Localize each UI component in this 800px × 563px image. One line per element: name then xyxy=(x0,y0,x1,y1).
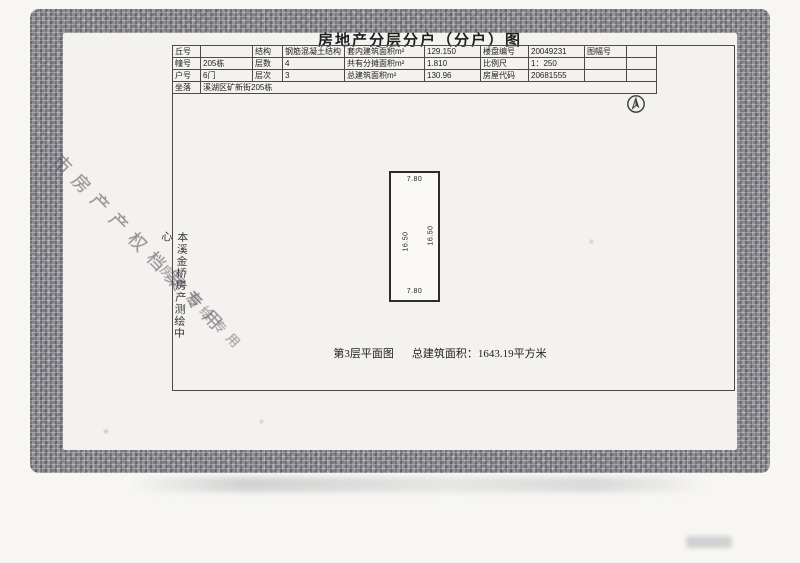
cell-value: 1.810 xyxy=(425,58,481,70)
cell-empty xyxy=(585,58,627,70)
plan-dim-bottom: 7.80 xyxy=(389,288,440,295)
cell-label: 层数 xyxy=(253,58,283,70)
cell-value xyxy=(201,46,253,58)
cell-empty xyxy=(627,58,657,70)
caption-plan-name: 第3层平面图 xyxy=(333,348,394,360)
cell-label: 户号 xyxy=(173,70,201,82)
drawing-area-border xyxy=(172,45,735,391)
toner-speck xyxy=(104,430,108,433)
property-info-table: 丘号 结构 钢筋混凝土结构 套内建筑面积m² 129.150 楼盘编号 2004… xyxy=(172,45,657,94)
table-row: 丘号 结构 钢筋混凝土结构 套内建筑面积m² 129.150 楼盘编号 2004… xyxy=(173,46,657,58)
table-row: 幢号 205栋 层数 4 共有分摊面积m² 1.810 比例尺 1：250 xyxy=(173,58,657,70)
table-row: 坐落 溪湖区矿新街205栋 xyxy=(173,82,657,94)
cell-label: 幢号 xyxy=(173,58,201,70)
survey-center-vertical-mark: 本溪金桥房产测绘中心 xyxy=(154,230,190,347)
scanned-document: 市房产产权档案专用 房产测绘专用 房地产分层分户（分户）图 丘号 结构 钢筋混凝… xyxy=(0,0,800,563)
cell-label: 坐落 xyxy=(173,82,201,94)
cell-label: 房屋代码 xyxy=(481,70,529,82)
cell-value: 6门 xyxy=(201,70,253,82)
cell-address: 溪湖区矿新街205栋 xyxy=(201,82,657,94)
table-row: 户号 6门 层次 3 总建筑面积m² 130.96 房屋代码 20681555 xyxy=(173,70,657,82)
toner-speck xyxy=(260,420,263,423)
cell-label: 结构 xyxy=(253,46,283,58)
cell-label: 层次 xyxy=(253,70,283,82)
cell-value: 129.150 xyxy=(425,46,481,58)
caption-total-area: 总建筑面积：1643.19平方米 xyxy=(412,348,547,360)
toner-speck xyxy=(590,240,593,243)
cell-label: 楼盘编号 xyxy=(481,46,529,58)
cell-label: 共有分摊面积m² xyxy=(345,58,425,70)
toner-smudge xyxy=(686,536,732,548)
plan-caption: 第3层平面图总建筑面积：1643.19平方米 xyxy=(290,345,590,361)
cell-value: 4 xyxy=(283,58,345,70)
cell-label: 丘号 xyxy=(173,46,201,58)
cell-value: 钢筋混凝土结构 xyxy=(283,46,345,58)
cell-value: 130.96 xyxy=(425,70,481,82)
cell-empty xyxy=(627,70,657,82)
toner-smudge xyxy=(130,477,710,492)
cell-label: 套内建筑面积m² xyxy=(345,46,425,58)
cell-value: 20681555 xyxy=(529,70,585,82)
cell-value: 1：250 xyxy=(529,58,585,70)
cell-value: 3 xyxy=(283,70,345,82)
cell-label: 总建筑面积m² xyxy=(345,70,425,82)
cell-label: 比例尺 xyxy=(481,58,529,70)
plan-dim-right: 16.50 xyxy=(428,214,435,258)
cell-value: 205栋 xyxy=(201,58,253,70)
plan-dim-top: 7.80 xyxy=(389,176,440,183)
cell-value: 20049231 xyxy=(529,46,585,58)
cell-value xyxy=(627,46,657,58)
plan-dim-left: 16.50 xyxy=(403,220,410,264)
cell-label: 图幅号 xyxy=(585,46,627,58)
north-compass-icon xyxy=(626,94,646,114)
cell-empty xyxy=(585,70,627,82)
